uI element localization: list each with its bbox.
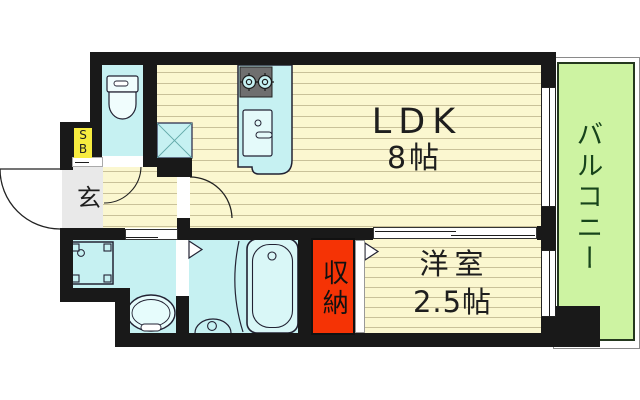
shoe-box-label-bottom: B — [74, 142, 92, 156]
closet-door-strip — [355, 240, 365, 333]
western-room-label: 洋室 — [392, 249, 517, 279]
wall-right-mid — [541, 207, 556, 250]
window-western-room — [541, 250, 556, 317]
toilet-door-gap — [102, 156, 143, 167]
ldk-label: LDK — [352, 104, 482, 141]
wall-toilet-left — [90, 52, 102, 130]
wall-washbath-lower — [176, 296, 189, 333]
wall-right-top — [541, 52, 556, 87]
wall-right-low — [541, 317, 556, 347]
balcony-label: バルコニー — [572, 100, 600, 295]
washing-machine-icon — [70, 242, 113, 284]
wall-top — [90, 52, 556, 65]
faucet-handle-icon — [256, 132, 272, 138]
hall-door-gap — [177, 177, 190, 218]
washroom-sliding-door — [125, 229, 178, 240]
hall-door-swing — [190, 177, 232, 218]
wall-bottom — [115, 333, 600, 347]
window-ldk — [541, 87, 556, 207]
bathtub-icon — [247, 239, 298, 333]
wash-basin-icon — [127, 295, 175, 331]
wall-toilet-right — [143, 52, 157, 167]
bath-drain-icon — [195, 319, 231, 333]
shoe-box-label-top: S — [74, 128, 92, 142]
shoe-box: S B — [74, 128, 92, 158]
western-room-size-label: 2.5帖 — [385, 287, 520, 317]
bath-partition-curve — [235, 241, 243, 332]
toilet-door-swing — [104, 166, 141, 203]
wall-divider-left — [60, 228, 125, 240]
western-room-door-icon — [365, 243, 378, 260]
bathroom-door-icon — [189, 241, 202, 258]
entrance-door-swing — [0, 169, 61, 229]
toilet-icon — [107, 76, 138, 119]
ldk-western-sliding-door — [373, 227, 537, 239]
entrance-label: 玄 — [74, 186, 104, 211]
ldk-size-label: 8帖 — [352, 143, 477, 175]
wall-below-fridge — [157, 158, 192, 177]
floorplan-canvas: S B LDK 8帖 洋室 2.5帖 バルコニー 収納 玄 — [0, 0, 640, 400]
refrigerator-space-icon — [157, 123, 192, 158]
storage-label: 収納 — [319, 249, 346, 329]
entry-step — [72, 157, 103, 167]
wall-bottom-right-block — [550, 306, 600, 347]
